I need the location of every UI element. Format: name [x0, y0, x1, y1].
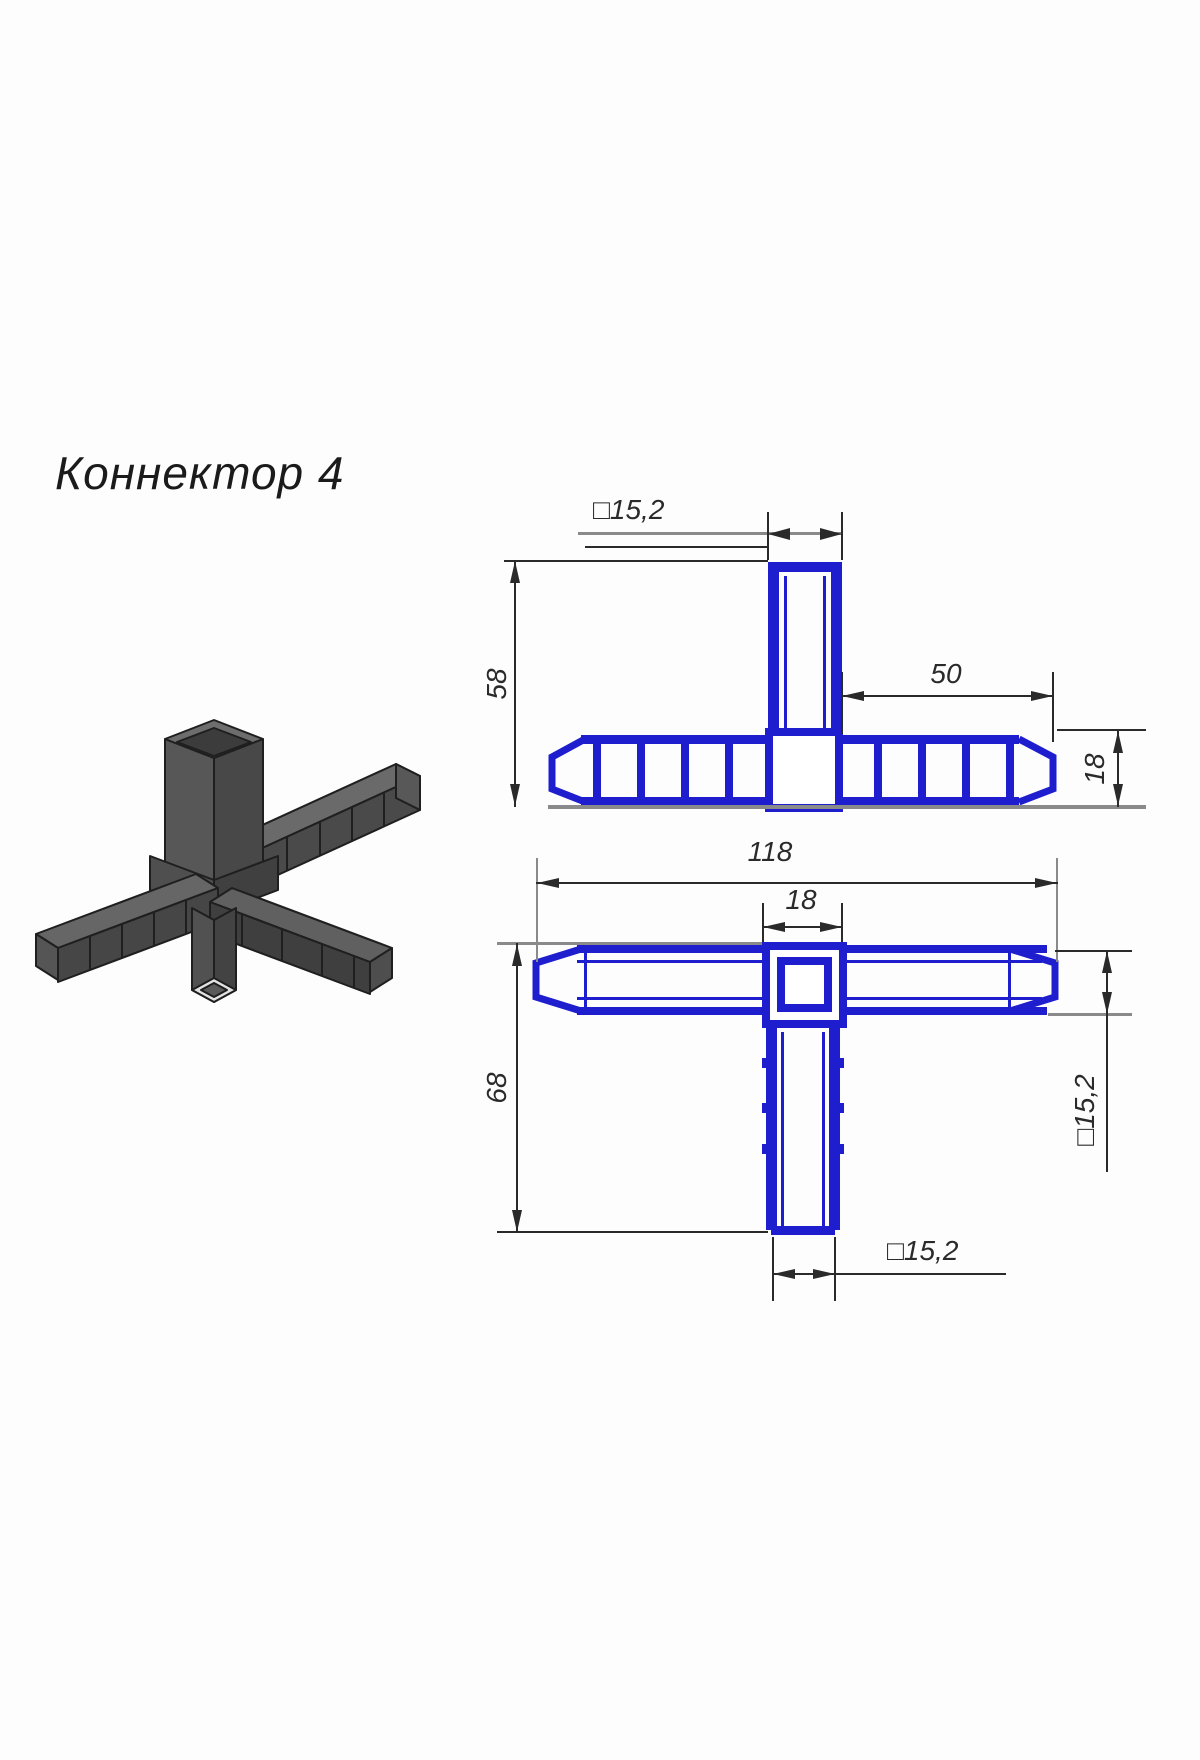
front-dim-58: 58	[481, 560, 768, 807]
plan-dim-68: 68	[481, 942, 768, 1233]
dim-label-18-front: 18	[1079, 753, 1110, 785]
front-baseline	[548, 805, 1146, 809]
front-view: □15,2 58 50 18	[481, 494, 1146, 809]
plan-dim-bottom-square: □15,2	[772, 1235, 1006, 1301]
dim-label-58: 58	[481, 668, 512, 700]
dim-label-right-square: □15,2	[1069, 1074, 1100, 1146]
dim-label-bottom-square: □15,2	[887, 1235, 959, 1266]
iso-bottom-socket	[192, 908, 236, 1002]
dim-label-50: 50	[930, 658, 962, 689]
page-title: Коннектор 4	[55, 447, 344, 499]
plan-view: 118 18 68 □15,2	[481, 836, 1132, 1301]
drawing-canvas: Коннектор 4	[0, 0, 1200, 1760]
iso-arm-left	[36, 874, 218, 982]
iso-arm-front	[210, 888, 392, 994]
front-dim-tube-square: □15,2	[578, 494, 843, 560]
dim-label-tube-square: □15,2	[593, 494, 665, 525]
front-dim-18: 18	[1057, 729, 1146, 807]
plan-dim-right-square: □15,2	[1048, 950, 1132, 1172]
dim-label-118: 118	[748, 836, 793, 867]
dim-label-18-plan: 18	[785, 884, 817, 915]
front-view-profile	[552, 562, 1053, 808]
front-dim-50: 50	[841, 658, 1054, 742]
drawing-sheet: Коннектор 4	[0, 0, 1200, 1760]
plan-view-profile	[536, 945, 1055, 1235]
plan-dim-18: 18	[762, 884, 843, 942]
isometric-view	[36, 720, 420, 1002]
dim-label-68: 68	[481, 1072, 512, 1104]
